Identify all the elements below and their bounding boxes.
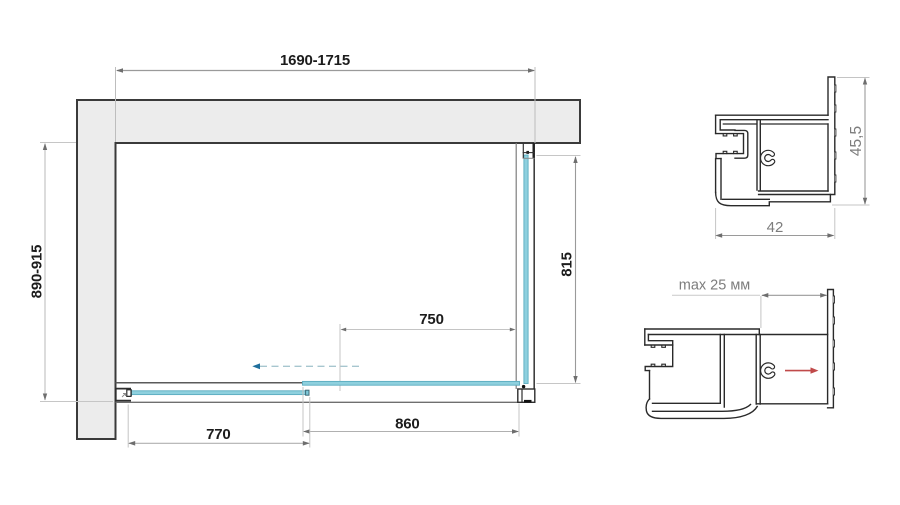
svg-text:max 25 мм: max 25 мм [679,278,751,294]
svg-text:860: 860 [395,415,419,432]
svg-text:750: 750 [419,311,443,328]
svg-text:45,5: 45,5 [848,126,865,156]
svg-text:1690-1715: 1690-1715 [280,52,350,69]
svg-text:890-915: 890-915 [29,245,46,299]
svg-text:815: 815 [559,252,576,276]
svg-text:42: 42 [767,219,784,236]
svg-text:770: 770 [206,426,230,443]
